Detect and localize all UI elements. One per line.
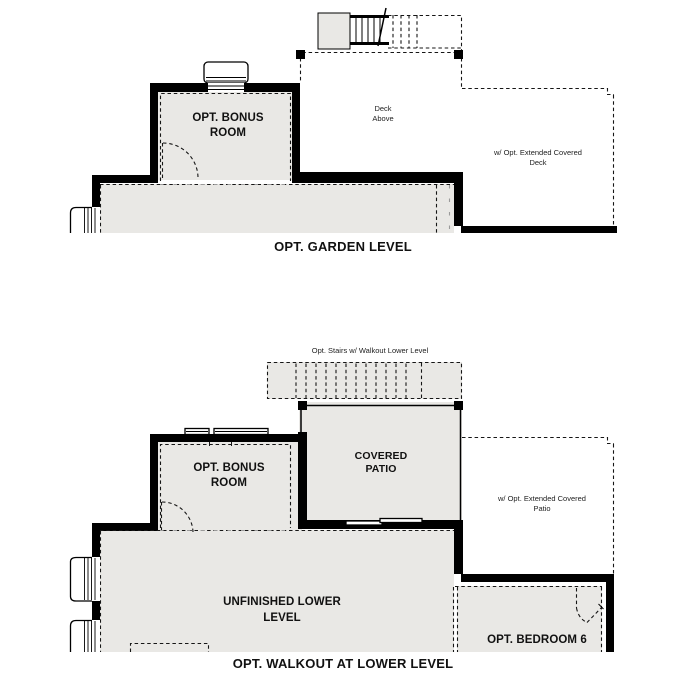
wall-segment — [454, 529, 463, 574]
garden-level-plan — [71, 8, 618, 233]
patio-post — [454, 401, 463, 410]
garden-stair-landing — [318, 13, 350, 49]
extended-deck-label: w/ Opt. Extended Covered Deck — [494, 148, 582, 167]
extended-deck-base-wall — [461, 226, 617, 233]
side-window — [71, 558, 93, 602]
bay-window — [204, 62, 248, 83]
wall-segment — [606, 582, 614, 652]
wall-segment — [292, 92, 300, 183]
unfinished-lower-level-label: UNFINISHED LOWER LEVEL — [219, 594, 345, 626]
wall-segment — [150, 434, 307, 442]
opt-stairs-note: Opt. Stairs w/ Walkout Lower Level — [270, 346, 470, 356]
floorplan-drawing — [0, 0, 687, 687]
sliding-door-leaf — [346, 521, 382, 525]
covered-patio-label: COVERED PATIO — [344, 450, 418, 476]
garden-plan-title: OPT. GARDEN LEVEL — [243, 239, 443, 255]
stair-break-line — [378, 8, 386, 46]
wall-segment — [92, 175, 158, 183]
side-window — [71, 621, 93, 653]
wall-segment — [298, 432, 307, 528]
wall-segment — [454, 183, 463, 226]
window-opening — [92, 557, 100, 601]
walkout-bonus-room-label: OPT. BONUS ROOM — [179, 461, 279, 491]
side-window — [71, 208, 93, 234]
wall-segment — [150, 92, 158, 177]
wall-segment — [92, 523, 158, 531]
bedroom6-label: OPT. BEDROOM 6 — [469, 633, 605, 648]
wall-segment — [150, 442, 158, 523]
walkout-stairs-floor — [267, 362, 462, 399]
deck-above-label: Deck Above — [365, 104, 401, 123]
deck-post — [454, 50, 463, 59]
wall-segment — [92, 183, 100, 208]
window-opening — [92, 207, 100, 233]
wall-segment — [300, 172, 463, 183]
garden-main-floor — [100, 184, 454, 233]
window-opening — [208, 83, 244, 92]
stair-outline-dashed — [388, 16, 462, 51]
walkout-plan-title: OPT. WALKOUT AT LOWER LEVEL — [193, 656, 493, 672]
extended-patio-label: w/ Opt. Extended Covered Patio — [498, 494, 586, 513]
patio-post — [298, 401, 307, 410]
floorplan-sheet: OPT. BONUS ROOM Deck Above w/ Opt. Exten… — [0, 0, 687, 687]
wall-segment — [92, 531, 100, 557]
extended-patio-base-wall — [461, 574, 614, 582]
unfinished-lower-level-floor — [100, 530, 454, 652]
sliding-door-leaf — [380, 519, 422, 523]
garden-bonus-room-label: OPT. BONUS ROOM — [178, 111, 278, 141]
window-opening — [92, 620, 100, 652]
deck-post — [296, 50, 305, 59]
wall-segment — [92, 601, 100, 620]
